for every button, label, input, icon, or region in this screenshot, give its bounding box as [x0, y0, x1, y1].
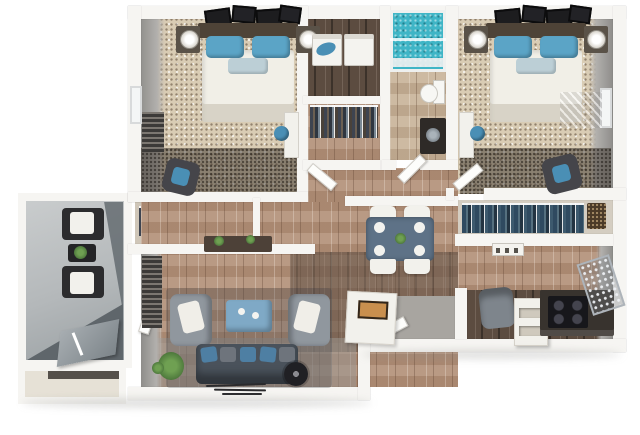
floor-plan: [0, 0, 640, 435]
wall-appliance: [492, 243, 524, 256]
bedroom-1-window: [130, 86, 142, 124]
dining-chair: [370, 259, 396, 274]
dining-plate: [414, 222, 425, 233]
bedroom-1-desk-stool: [274, 126, 289, 141]
kitchen-desk-chair: [478, 286, 516, 329]
storage-back-shadow: [48, 371, 119, 379]
bedroom-1-wall-art: [231, 5, 256, 24]
sofa-pillow: [259, 346, 276, 363]
walk-in-closet-hanging-clothes: [310, 105, 378, 138]
bedroom-1-pillow-right: [252, 36, 290, 58]
sofa-pillow: [279, 347, 295, 362]
bedroom-2-wall-art: [521, 5, 547, 24]
media-console: [142, 256, 162, 328]
island-label-sign: [358, 300, 389, 320]
dining-plate: [374, 245, 385, 256]
wall-jog: [358, 339, 370, 400]
bedroom-2-pillow-right: [540, 36, 578, 58]
patio-chair-cushion: [70, 272, 94, 294]
coffee-table-tray-item: [238, 308, 245, 315]
plan-drop-shadow-right: [362, 350, 622, 359]
shower-glass-line: [390, 38, 446, 41]
wall-bath-bottom-a: [382, 160, 396, 170]
dining-centerpiece: [395, 233, 406, 244]
console-plant: [214, 236, 224, 246]
dining-plate: [414, 245, 425, 256]
bedroom-1-accent-pillow: [228, 58, 268, 74]
sofa-pillow: [240, 347, 256, 362]
dryer: [344, 34, 374, 66]
wall-closet2-bottom: [455, 234, 613, 246]
rug-pattern-line: [222, 393, 262, 395]
shower-ledge: [393, 58, 443, 67]
bedroom-1-lamp-left: [180, 30, 199, 49]
bedroom-2-lamp-left: [468, 30, 487, 49]
wall-bed1-bottom: [128, 192, 308, 202]
plan-drop-shadow-left: [22, 398, 372, 408]
bedroom-2-desk-stool: [470, 126, 485, 141]
bedroom-2-closet-hanging-clothes: [462, 203, 584, 233]
patio-plant: [74, 246, 87, 259]
bathroom-sink: [426, 128, 440, 142]
bedroom-2-wall-art: [568, 5, 592, 25]
bedroom-2-lamp-right: [587, 30, 606, 49]
bedroom-2-pillow-left: [494, 36, 532, 58]
wall-bed2-bottom-a: [446, 188, 454, 200]
floor-fan: [284, 362, 308, 386]
console-plant: [246, 235, 255, 244]
wall-laundry-closet-divider: [303, 96, 380, 104]
ottoman-coffee-table: [226, 300, 272, 332]
wall-bath-bed2: [446, 6, 458, 170]
wall-kitchen-partition: [455, 288, 467, 339]
bedroom-2-accent-pillow: [516, 58, 556, 74]
dining-chair: [404, 259, 430, 274]
sofa-pillow: [220, 347, 236, 362]
closet-basket: [587, 203, 606, 229]
range-cooktop: [548, 296, 588, 328]
floor-plant-leaf: [152, 362, 164, 374]
dining-plate: [374, 222, 385, 233]
coffee-table-tray-item: [252, 312, 259, 319]
patio-chair-cushion: [70, 212, 94, 234]
bedroom-1-wall-art: [278, 5, 302, 25]
bedroom-1-pillow-left: [206, 36, 244, 58]
bedroom-2-blinds-light: [560, 92, 602, 128]
toilet-bowl: [420, 84, 438, 103]
sofa-pillow: [200, 346, 218, 363]
bedroom-1-dresser: [142, 112, 164, 152]
wall-hall-bottom: [345, 196, 458, 206]
wall-utility-bath: [380, 6, 390, 170]
